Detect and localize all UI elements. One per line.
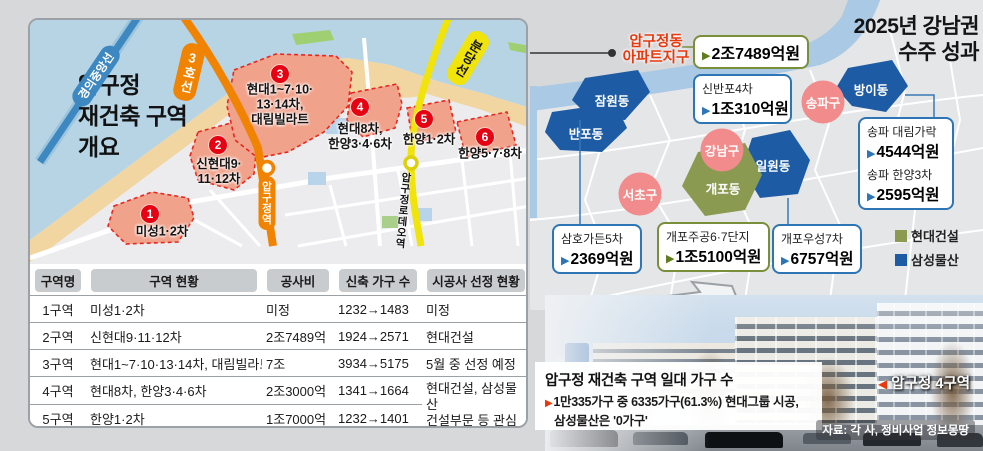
household-stats-overlay: 압구정 재건축 구역 일대 가구 수 ▶1만335가구 중 6335가구(61.… (535, 362, 822, 430)
label-jamwon: 잠원동 (595, 91, 630, 110)
header-cost: 공사비 (267, 269, 329, 292)
school-block-2 (308, 172, 326, 185)
zone-6-badge: 6 (476, 128, 494, 146)
amount-box-samho: 삼호가든5차 ▶2369억원 (552, 224, 642, 274)
header-builder: 시공사 선정 현황 (427, 269, 525, 292)
gu-badge-seocho: 서초구 (619, 173, 662, 216)
gangnam-results-panel: 2025년 강남권 수주 성과 압구정동 아파트지구 잠원동 반포동 방이동 일… (530, 0, 983, 451)
callout-dot (608, 49, 616, 57)
zone-5-label: 한양1·2차 (403, 133, 456, 148)
overlay-line1: ▶1만335가구 중 6335가구(61.3%) 현대그룹 시공, (545, 394, 812, 413)
location-marker-icon: ◀ (878, 377, 887, 391)
triangle-bullet-icon: ▶ (545, 398, 552, 409)
apgujeong-callout: 압구정동 아파트지구 (618, 34, 694, 66)
amount-box-gaepo-useong: 개포우성7차 ▶6757억원 (772, 224, 862, 274)
legend-item-hyundai: 현대건설 (895, 226, 959, 245)
legend-item-samsung: 삼성물산 (895, 250, 959, 269)
table-row: 1구역 미성1·2차 미정 1232→1483 미정 (30, 296, 528, 323)
header-status: 구역 현황 (91, 269, 257, 292)
triangle-bullet-icon: ▶ (867, 148, 875, 160)
overlay-title: 압구정 재건축 구역 일대 가구 수 (545, 369, 812, 390)
apgujeong-map: 압구정 재건축 구역 개요 경의중앙선 3호선 분당선 압구정역 압구정로데오역… (30, 20, 528, 264)
zone-2-badge: 2 (209, 136, 227, 154)
zone-4-label: 현대8차,한양3·4·6차 (328, 122, 392, 152)
zone-2-label: 신현대9·11·12차 (196, 157, 242, 187)
zone-6-label: 한양5·7·8차 (458, 147, 522, 162)
merged-builder-cell: 현대건설, 삼성물산 건설부문 등 관심 (422, 377, 528, 429)
table-row: 2구역 신현대9·11·12차 2조7489억 1924→2571 현대건설 (30, 323, 528, 350)
zone-4-badge: 4 (351, 98, 369, 116)
table-header-row: 구역명 구역 현황 공사비 신축 가구 수 시공사 선정 현황 (30, 267, 528, 296)
zone-1-badge: 1 (141, 205, 159, 223)
table-row: 4구역 현대8차, 한양3·4·6차 2조3000억 1341→1664 현대건… (30, 377, 528, 405)
zone-3-badge: 3 (271, 65, 289, 83)
header-zone: 구역명 (35, 269, 81, 292)
amount-box-apgujeong: ▶2조7489억원 (693, 35, 809, 69)
overlay-line2: 삼성물산은 '0가구' (545, 413, 812, 430)
hyundai-swatch-icon (895, 230, 907, 242)
amount-box-sinbanpo: 신반포4차 ▶1조310억원 (693, 74, 792, 124)
triangle-bullet-icon: ▶ (561, 255, 569, 267)
gu-badge-gangnam: 강남구 (701, 129, 744, 172)
label-banpo: 반포동 (569, 124, 604, 143)
header-units: 신축 가구 수 (339, 269, 417, 292)
label-gaepo: 개포동 (706, 179, 741, 198)
zone-table: 구역명 구역 현황 공사비 신축 가구 수 시공사 선정 현황 1구역 미성1·… (30, 264, 528, 426)
apgujeong-overview-panel: 압구정 재건축 구역 개요 경의중앙선 3호선 분당선 압구정역 압구정로데오역… (28, 18, 528, 428)
infographic-canvas: 압구정 재건축 구역 개요 경의중앙선 3호선 분당선 압구정역 압구정로데오역… (0, 0, 983, 451)
zone-status-table: 구역명 구역 현황 공사비 신축 가구 수 시공사 선정 현황 1구역 미성1·… (30, 267, 528, 428)
triangle-bullet-icon: ▶ (666, 253, 674, 265)
label-bangi: 방이동 (854, 80, 889, 99)
triangle-bullet-icon: ▶ (702, 50, 710, 62)
label-irwon: 일원동 (756, 156, 791, 175)
right-panel-title: 2025년 강남권 수주 성과 (854, 14, 979, 66)
table-row: 3구역 현대1~7·10·13·14차, 대림빌라트 7조 3934→5175 … (30, 350, 528, 377)
rodeo-station-marker (405, 157, 417, 169)
triangle-bullet-icon: ▶ (781, 255, 789, 267)
gu-badge-songpa: 송파구 (802, 81, 845, 124)
triangle-bullet-icon: ▶ (702, 105, 710, 117)
amount-box-gaepo-jugong: 개포주공6·7단지 ▶1조5100억원 (657, 222, 770, 272)
apgujeong-station-marker (261, 162, 274, 175)
apgujeong-station-label: 압구정역 (259, 176, 276, 230)
photo-area-label: ◀ 압구정 4구역 (878, 372, 970, 393)
zone-3-label: 현대1~7·10·13·14차,대림빌라트 (247, 83, 313, 128)
zone-5-badge: 5 (415, 110, 433, 128)
samsung-swatch-icon (895, 254, 907, 266)
amount-box-songpa: 송파 대림가락 ▶4544억원 송파 한양3차 ▶2595억원 (858, 117, 954, 210)
zone-1-label: 미성1·2차 (136, 225, 189, 240)
source-credit: 자료: 각 사, 정비사업 정보몽땅 (816, 420, 975, 440)
legend: 현대건설 삼성물산 (895, 226, 959, 274)
triangle-bullet-icon: ▶ (867, 191, 875, 203)
river-branch (530, 86, 537, 218)
